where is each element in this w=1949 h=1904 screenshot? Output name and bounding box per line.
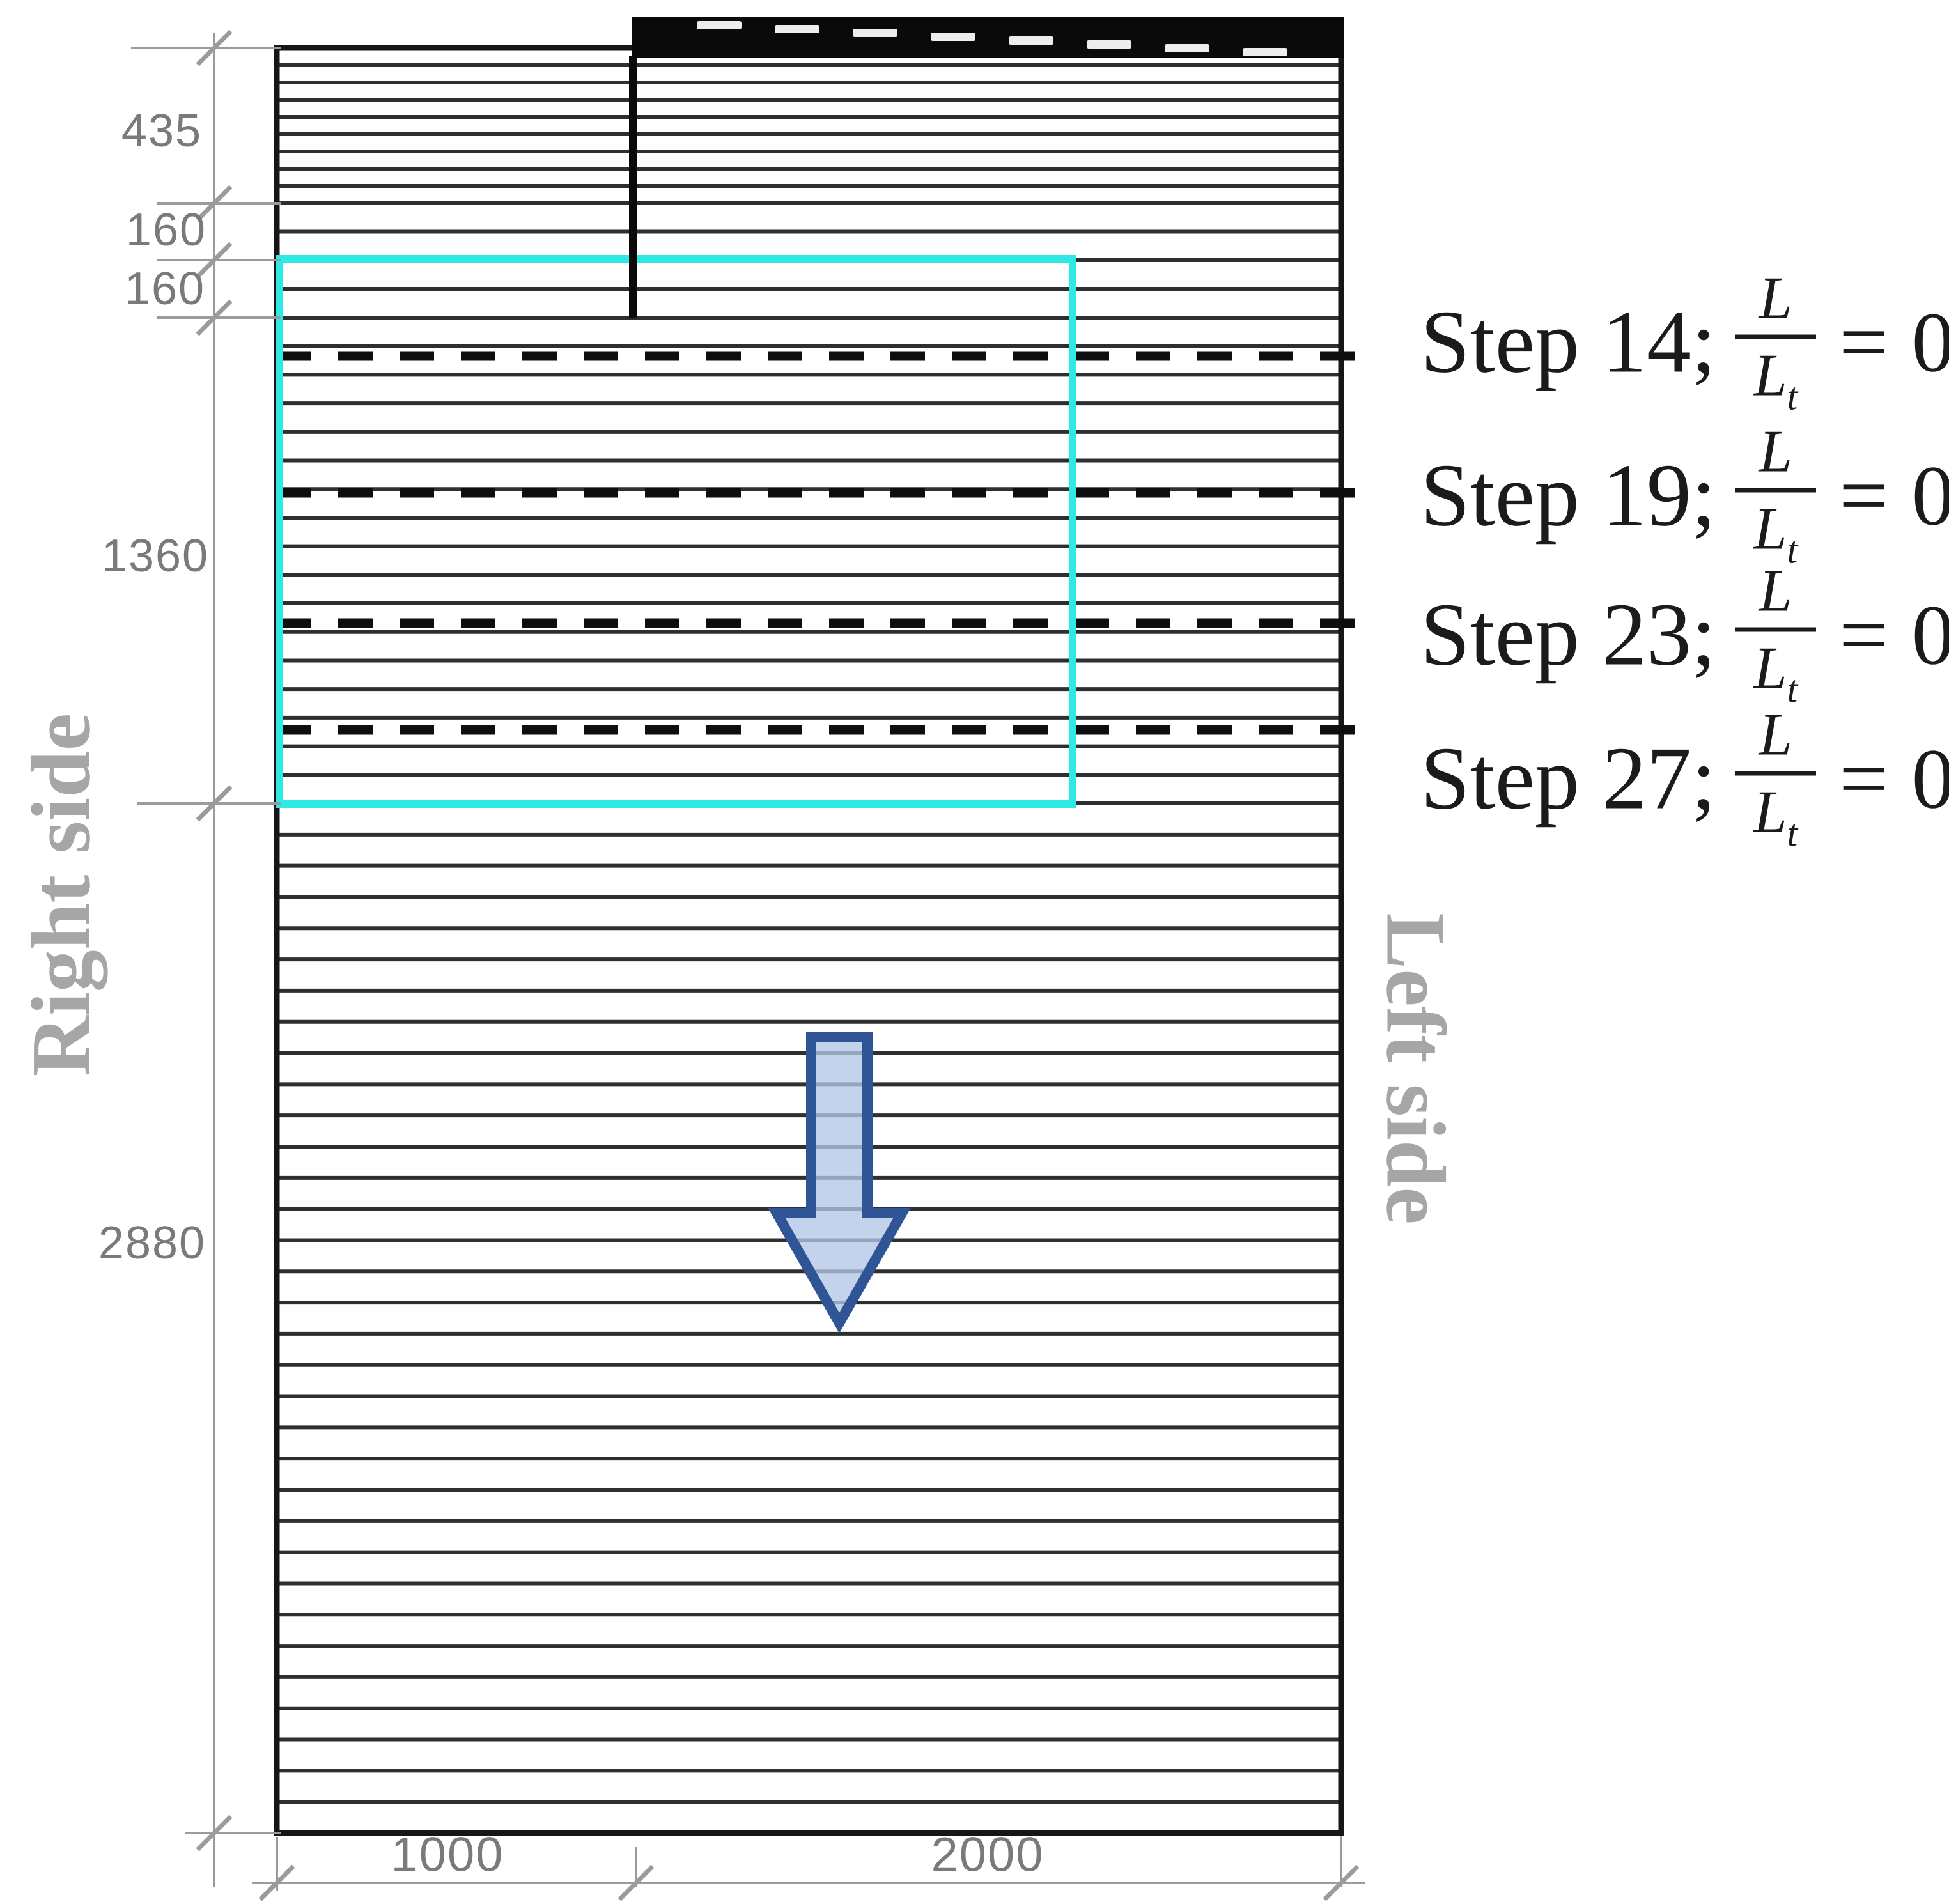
part-outline-group [277,48,1341,1833]
dim-label-435: 435 [121,105,202,157]
denominator-base: L [1753,496,1787,562]
fraction-bar [1735,488,1816,493]
right-side-label: Right side [12,713,110,1076]
denominator-base: L [1753,779,1787,846]
denominator-base: L [1753,343,1787,409]
dim-label-1360: 1360 [102,530,209,582]
substrate-hatch-dash [853,29,897,37]
step-annotation-14: Step 14; L Lt = 0.21 [1420,268,1949,416]
step-dashed-lines-group [277,356,1376,730]
highlight-rectangle [279,259,1073,804]
substrate-hatch-dash [1243,48,1287,56]
step-name: Step 23; [1420,584,1716,686]
substrate-hatch-dash [697,21,742,29]
denominator-subscript: t [1787,376,1798,418]
dim-label-160-a: 160 [126,204,206,256]
length-ratio-fraction: L Lt [1735,561,1816,709]
dim-label-2000: 2000 [931,1827,1044,1883]
step-name: Step 14; [1420,291,1716,394]
step-name: Step 27; [1420,727,1716,830]
ratio-value: 0.29 [1912,446,1949,545]
substrate-hatch-dash [1009,36,1053,45]
fraction-denominator: Lt [1746,632,1805,709]
highlight-rectangle-group [279,259,1073,804]
ratio-value: 0.41 [1912,729,1949,828]
substrate-hatch-dash [775,25,819,33]
substrate-hatch-dash [1087,40,1131,49]
length-ratio-fraction: L Lt [1735,705,1816,853]
dim-label-2880: 2880 [98,1217,206,1269]
wire-arc-deposition-drawing: 435 160 160 1360 2880 1000 2000 Right si… [0,0,1949,1904]
fraction-denominator: Lt [1746,339,1805,416]
equals-sign: = [1835,291,1893,393]
step-name: Step 19; [1420,444,1716,547]
part-outline [277,48,1341,1833]
fraction-numerator: L [1751,268,1800,335]
substrate-hatch-dash [931,33,975,41]
ratio-value: 0.21 [1912,293,1949,391]
dim-label-160-b: 160 [125,263,205,315]
fraction-bar [1735,628,1816,632]
fraction-bar [1735,771,1816,776]
equals-sign: = [1835,728,1893,830]
step-annotation-27: Step 27; L Lt = 0.41 [1420,705,1949,853]
left-side-label: Left side [1367,913,1465,1225]
fraction-numerator: L [1751,561,1800,628]
step-annotation-23: Step 23; L Lt = 0.35 [1420,561,1949,709]
weld-layer-lines-group [277,48,1341,1802]
equals-sign: = [1835,445,1893,546]
length-ratio-fraction: L Lt [1735,268,1816,416]
dim-label-1000: 1000 [391,1827,504,1883]
dimension-lines-group [131,31,1365,1900]
denominator-subscript: t [1787,812,1798,855]
length-ratio-fraction: L Lt [1735,422,1816,569]
equals-sign: = [1835,584,1893,686]
fraction-denominator: Lt [1746,776,1805,853]
substrate-hatch-dash [1165,44,1209,52]
step-annotation-19: Step 19; L Lt = 0.29 [1420,422,1949,569]
fraction-bar [1735,335,1816,339]
deposition-arrow-group [777,1037,902,1323]
fraction-numerator: L [1751,705,1800,771]
ratio-value: 0.35 [1912,585,1949,684]
fraction-numerator: L [1751,422,1800,488]
denominator-base: L [1753,635,1787,702]
deposition-direction-arrow [777,1037,902,1323]
